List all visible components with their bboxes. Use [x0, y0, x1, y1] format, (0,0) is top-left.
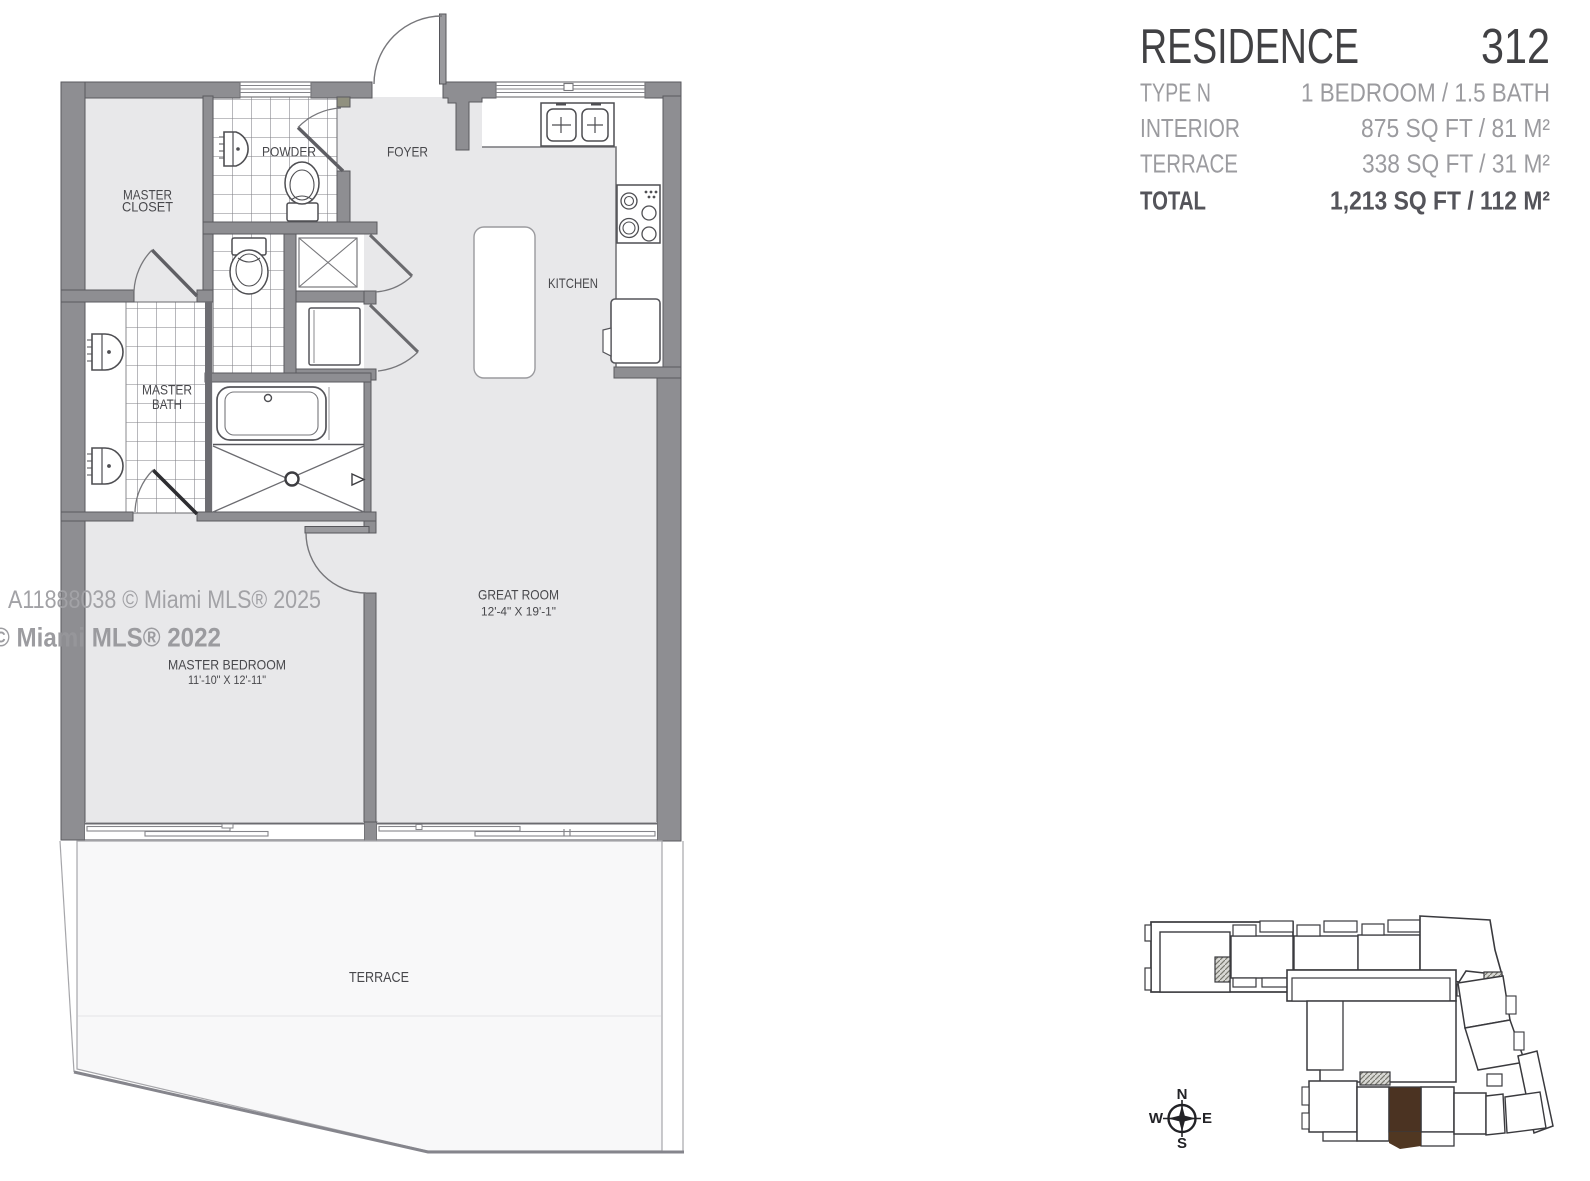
svg-text:TYPE N: TYPE N — [1140, 78, 1211, 108]
svg-text:INTERIOR: INTERIOR — [1140, 113, 1240, 143]
svg-text:GREAT ROOM: GREAT ROOM — [478, 587, 559, 603]
svg-text:TERRACE: TERRACE — [1140, 149, 1238, 179]
svg-text:CLOSET: CLOSET — [122, 199, 173, 215]
svg-text:MASTER BEDROOM: MASTER BEDROOM — [168, 657, 286, 673]
svg-text:11'-10" X 12'-11": 11'-10" X 12'-11" — [188, 673, 266, 687]
svg-text:© Miami MLS® 2022: © Miami MLS® 2022 — [0, 623, 221, 653]
svg-text:875 SQ FT / 81 M²: 875 SQ FT / 81 M² — [1361, 113, 1550, 143]
svg-text:E: E — [1202, 1110, 1212, 1127]
svg-text:BATH: BATH — [152, 396, 182, 412]
svg-text:338 SQ FT / 31 M²: 338 SQ FT / 31 M² — [1362, 149, 1550, 179]
svg-text:POWDER: POWDER — [262, 144, 316, 160]
svg-text:TERRACE: TERRACE — [349, 969, 409, 986]
svg-text:TOTAL: TOTAL — [1140, 186, 1206, 216]
svg-text:1,213 SQ FT / 112 M²: 1,213 SQ FT / 112 M² — [1330, 186, 1550, 216]
svg-text:RESIDENCE: RESIDENCE — [1140, 20, 1359, 74]
svg-text:312: 312 — [1481, 20, 1550, 74]
svg-text:N: N — [1177, 1086, 1188, 1103]
svg-text:A11888038 © Miami MLS® 2025: A11888038 © Miami MLS® 2025 — [8, 586, 321, 614]
svg-text:KITCHEN: KITCHEN — [548, 275, 598, 291]
svg-text:FOYER: FOYER — [387, 144, 428, 160]
svg-text:1 BEDROOM / 1.5 BATH: 1 BEDROOM / 1.5 BATH — [1301, 78, 1550, 108]
svg-text:12'-4" X 19'-1": 12'-4" X 19'-1" — [481, 605, 556, 619]
svg-text:W: W — [1149, 1110, 1164, 1127]
svg-text:S: S — [1177, 1135, 1187, 1152]
